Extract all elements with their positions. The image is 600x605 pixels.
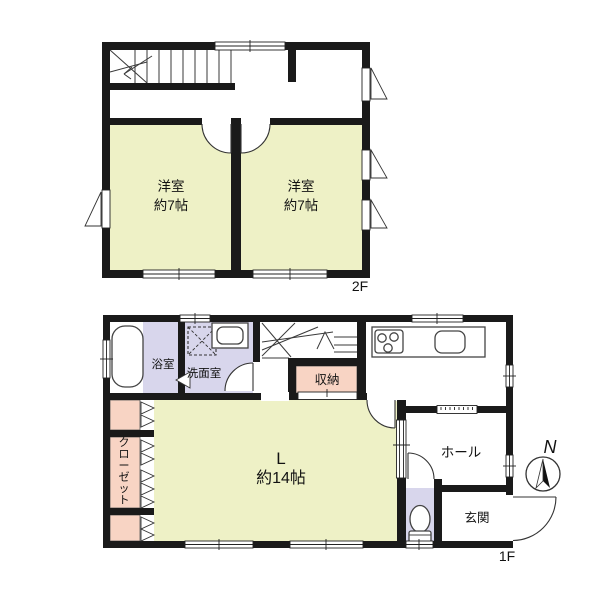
floorplan-2f: 洋室 約7帖 洋室 約7帖 2F [85, 40, 387, 294]
vanity-sink-icon [212, 323, 248, 348]
window [185, 539, 253, 550]
label-hall: ホール [441, 445, 482, 460]
label-washroom: 洗面室 [187, 366, 222, 380]
casement-window [85, 190, 110, 228]
casement-window [362, 150, 387, 180]
window [180, 313, 210, 324]
window [253, 268, 327, 280]
sink-icon [435, 331, 465, 353]
label-living-name: L [276, 449, 285, 468]
window [406, 539, 433, 550]
door-gap [367, 392, 397, 401]
room-bathroom [143, 322, 178, 393]
kitchen-counter [372, 327, 485, 357]
toilet-icon [409, 506, 431, 544]
label-entrance: 玄関 [464, 510, 489, 525]
closet-cell-bottom [110, 515, 140, 541]
floor-plan-page: 洋室 約7帖 洋室 約7帖 2F [0, 0, 600, 600]
window [503, 365, 516, 387]
window [100, 340, 113, 378]
window [290, 539, 363, 550]
label-floor-2f: 2F [352, 278, 368, 294]
label-floor-1f: 1F [499, 548, 515, 564]
label-north: N [544, 437, 558, 457]
bathtub-icon [112, 326, 143, 387]
window [143, 268, 215, 280]
casement-window [362, 200, 387, 230]
label-closet: クローゼット [119, 436, 130, 507]
window [215, 40, 285, 52]
label-room2-size: 約7帖 [284, 198, 319, 213]
folding-doors-closet [141, 402, 154, 541]
label-room2-name: 洋室 [288, 178, 315, 194]
sliding-door-hall-kitchen [437, 406, 477, 414]
closet-cell-top [110, 400, 140, 430]
door-gap [406, 479, 434, 488]
floorplan-1f: N 浴室 洗面室 収納 クローゼット L 約14帖 ホール 玄関 1F [100, 313, 560, 564]
stove-icon [375, 330, 403, 353]
entrance-door-arc [513, 497, 556, 541]
label-room1-size: 約7帖 [154, 198, 189, 213]
window [412, 313, 463, 324]
stairs-icon-2f [110, 50, 231, 83]
passage-gap [261, 392, 289, 401]
casement-window [362, 68, 387, 101]
floor-plan-drawing: 洋室 約7帖 洋室 約7帖 2F [0, 0, 600, 600]
label-storage: 収納 [314, 373, 339, 387]
entrance-gap [506, 495, 514, 541]
label-room1-name: 洋室 [158, 178, 185, 194]
stairs-icon-1f [262, 323, 357, 358]
label-bathroom: 浴室 [152, 357, 175, 371]
compass-icon: N [526, 437, 560, 491]
label-living-size: 約14帖 [256, 469, 306, 487]
window [503, 455, 516, 477]
